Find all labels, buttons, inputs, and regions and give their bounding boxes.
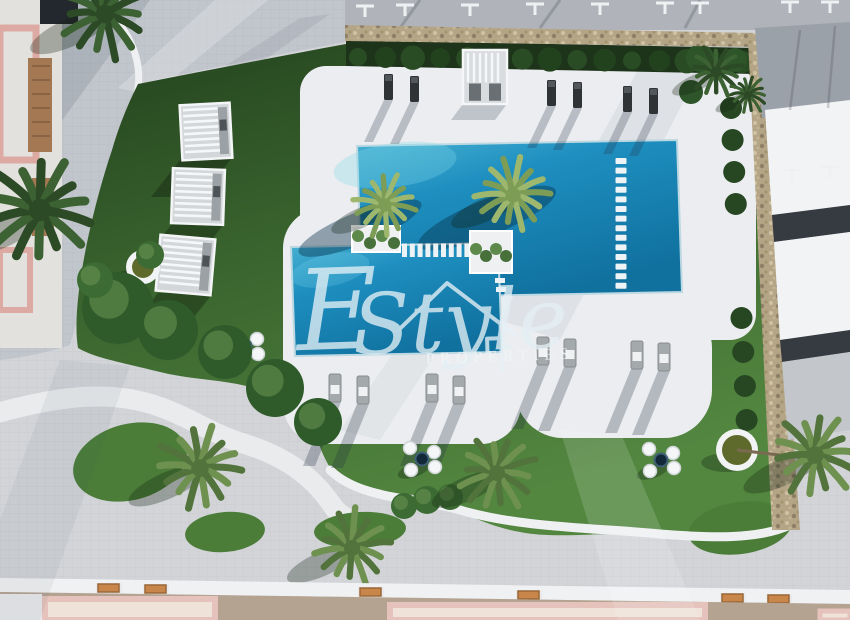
pouf: [405, 464, 418, 477]
pool-bridge-pad: [464, 244, 469, 258]
pool-ladder-pad: [616, 273, 627, 279]
pool-ladder-pad: [616, 177, 627, 183]
pool-bridge-pad: [418, 244, 423, 258]
hedge-bush: [538, 47, 562, 71]
hedge-bush: [512, 49, 533, 70]
hedge-bush: [732, 341, 754, 363]
wood-bench: [768, 595, 789, 603]
pool-ladder-pad: [616, 158, 627, 164]
pool-ladder-pad: [616, 168, 627, 174]
planter-plant: [490, 243, 502, 255]
wood-bench: [360, 588, 381, 596]
garden-bush: [391, 493, 417, 519]
pool-ladder-pad: [616, 244, 627, 250]
garden-bush: [294, 398, 342, 446]
wood-bench: [722, 594, 743, 602]
round-table: [655, 454, 668, 467]
hedge-bush: [401, 46, 425, 70]
hedge-bush: [725, 193, 747, 215]
hedge-bush: [723, 161, 745, 183]
pool-bridge-pad: [410, 244, 415, 258]
pool-ladder-pad: [616, 206, 627, 212]
pouf: [428, 446, 441, 459]
pouf: [644, 465, 657, 478]
wood-bench: [518, 591, 539, 599]
hedge-bush: [731, 307, 753, 329]
pouf: [251, 333, 264, 346]
pouf: [667, 447, 680, 460]
garden-bush: [77, 262, 113, 298]
pool-ladder-pad: [616, 254, 627, 260]
hedge-bush: [649, 50, 670, 71]
hedge-bush: [567, 50, 587, 70]
pool-bridge-pad: [441, 244, 446, 258]
top-roof-strip: [340, 0, 850, 30]
pool-ladder-pad: [616, 196, 627, 202]
hedge-bush: [623, 52, 641, 70]
planter-plant: [352, 230, 364, 242]
pouf: [404, 442, 417, 455]
pool-ladder-pad: [616, 235, 627, 241]
aerial-render-stage: E Style PROPERTIES: [0, 0, 850, 620]
garden-bush: [198, 325, 252, 379]
pool-bridge-pad: [425, 244, 430, 258]
planter-plant: [388, 237, 400, 249]
garden-bush: [138, 300, 198, 360]
hedge-bush: [722, 129, 744, 151]
pool-ladder-pad: [616, 225, 627, 231]
pool-bridge-pad: [457, 244, 462, 258]
garden-bush: [136, 241, 164, 269]
pouf: [643, 443, 656, 456]
planter-plant: [470, 243, 482, 255]
pool-ladder-pad: [616, 283, 627, 289]
wood-bench: [98, 584, 119, 592]
wood-bench: [145, 585, 166, 593]
pouf: [252, 348, 265, 361]
planter-plant: [500, 250, 512, 262]
pool-ladder-pad: [616, 216, 627, 222]
pool-bridge-pad: [402, 244, 407, 258]
garden-bush: [246, 359, 304, 417]
pool-ladder-pad: [616, 187, 627, 193]
aerial-render-svg: E Style PROPERTIES: [0, 0, 850, 620]
pool-bridge-pad: [433, 244, 438, 258]
hedge-bush: [375, 47, 396, 68]
pool-ladder-pad: [616, 264, 627, 270]
hedge-bush: [349, 48, 367, 66]
hedge-bush: [736, 409, 758, 431]
pouf: [429, 461, 442, 474]
pool-bridge-pad: [449, 244, 454, 258]
hedge-bush: [430, 48, 450, 68]
pouf: [668, 462, 681, 475]
round-table: [416, 453, 429, 466]
hedge-bush: [593, 49, 616, 72]
hedge-bush: [734, 375, 756, 397]
planter-plant: [480, 250, 492, 262]
